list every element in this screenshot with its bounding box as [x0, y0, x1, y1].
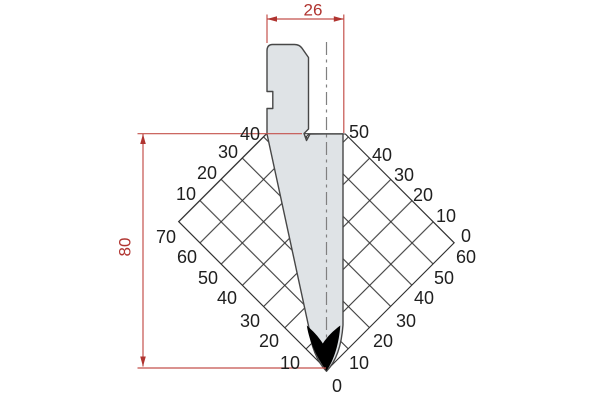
angle-label: 30 [218, 142, 238, 162]
angle-label-apex: 0 [332, 376, 342, 396]
angle-label: 30 [240, 311, 260, 331]
angle-label: 50 [434, 268, 454, 288]
arrowhead-left [267, 16, 277, 22]
angle-label: 50 [198, 268, 218, 288]
angle-label: 20 [413, 185, 433, 205]
dimension-height-value: 80 [116, 238, 135, 257]
punch-technical-drawing: 26 80 40 30 20 10 70 60 50 40 30 20 10 0… [0, 0, 600, 400]
angle-label: 10 [280, 353, 300, 373]
angle-label: 0 [461, 226, 471, 246]
angle-label: 40 [414, 288, 434, 308]
angle-label: 10 [176, 184, 196, 204]
drawing-canvas: 26 80 40 30 20 10 70 60 50 40 30 20 10 0… [0, 0, 600, 400]
dimension-width-value: 26 [304, 1, 323, 20]
angle-label: 50 [349, 122, 369, 142]
angle-label: 10 [349, 353, 369, 373]
angle-label: 40 [240, 124, 260, 144]
angle-label: 40 [372, 145, 392, 165]
arrowhead-right [334, 16, 344, 22]
angle-label: 70 [156, 227, 176, 247]
angle-label: 30 [394, 165, 414, 185]
angle-label: 30 [396, 311, 416, 331]
angle-label: 60 [456, 247, 476, 267]
angle-label: 20 [373, 331, 393, 351]
angle-label: 10 [436, 206, 456, 226]
arrowhead-top [140, 134, 146, 144]
arrowhead-bottom [140, 357, 146, 367]
angle-label: 60 [177, 247, 197, 267]
angle-label: 20 [259, 331, 279, 351]
angle-label: 40 [217, 288, 237, 308]
angle-label: 20 [197, 163, 217, 183]
